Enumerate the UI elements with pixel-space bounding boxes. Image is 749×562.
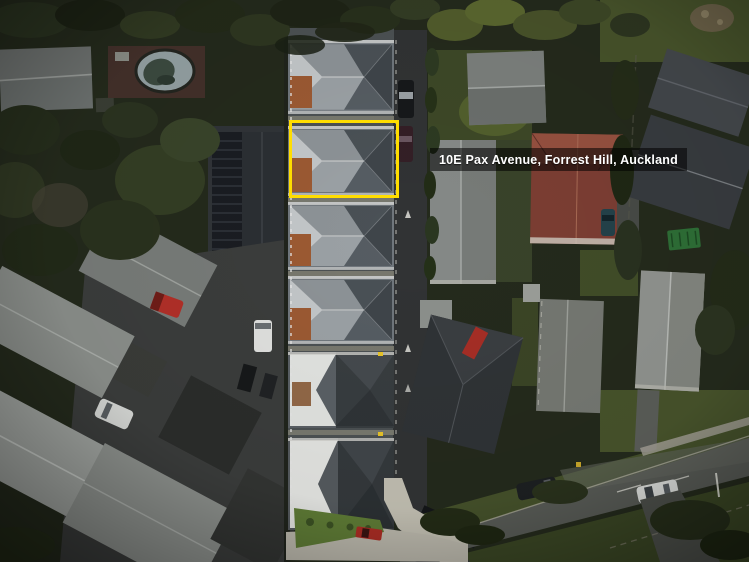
aerial-scene [0, 0, 749, 562]
address-label: 10E Pax Avenue, Forrest Hill, Auckland [430, 148, 687, 171]
aerial-photo: 10E Pax Avenue, Forrest Hill, Auckland [0, 0, 749, 562]
property-highlight-box [289, 120, 399, 198]
vignette [0, 0, 749, 562]
address-label-text: 10E Pax Avenue, Forrest Hill, Auckland [439, 153, 678, 167]
